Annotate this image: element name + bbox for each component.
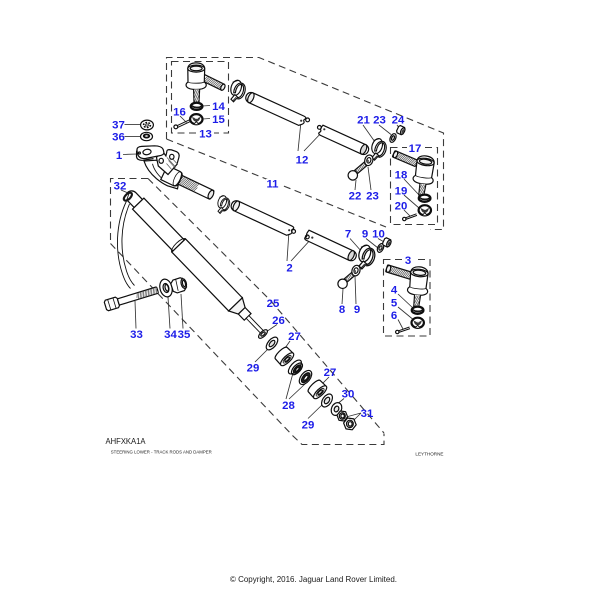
svg-text:9: 9 bbox=[354, 304, 360, 316]
svg-text:5: 5 bbox=[391, 298, 398, 310]
svg-text:22: 22 bbox=[349, 191, 362, 203]
svg-text:10: 10 bbox=[372, 229, 385, 241]
svg-text:24: 24 bbox=[392, 115, 405, 127]
svg-text:20: 20 bbox=[395, 201, 408, 213]
svg-text:27: 27 bbox=[288, 331, 301, 343]
svg-text:30: 30 bbox=[342, 389, 355, 401]
svg-text:37: 37 bbox=[112, 120, 125, 132]
svg-text:34: 34 bbox=[164, 329, 177, 341]
svg-text:12: 12 bbox=[296, 155, 309, 167]
svg-text:3: 3 bbox=[405, 255, 411, 267]
svg-text:33: 33 bbox=[130, 329, 143, 341]
svg-text:11: 11 bbox=[266, 179, 279, 191]
svg-text:9: 9 bbox=[362, 229, 368, 241]
svg-text:14: 14 bbox=[212, 101, 225, 113]
svg-text:2: 2 bbox=[286, 263, 292, 275]
svg-text:8: 8 bbox=[339, 304, 345, 316]
svg-text:6: 6 bbox=[391, 310, 397, 322]
svg-text:18: 18 bbox=[395, 170, 408, 182]
svg-text:17: 17 bbox=[409, 143, 422, 155]
svg-text:13: 13 bbox=[199, 129, 212, 141]
svg-text:1: 1 bbox=[116, 150, 123, 162]
svg-text:AHFXKA1A: AHFXKA1A bbox=[106, 436, 146, 446]
svg-text:19: 19 bbox=[395, 186, 408, 198]
svg-text:21: 21 bbox=[357, 115, 370, 127]
svg-text:4: 4 bbox=[391, 285, 398, 297]
svg-text:© Copyright, 2016. Jaguar Land: © Copyright, 2016. Jaguar Land Rover Lim… bbox=[230, 575, 397, 584]
svg-text:16: 16 bbox=[173, 107, 186, 119]
svg-text:36: 36 bbox=[112, 132, 125, 144]
svg-text:25: 25 bbox=[267, 298, 280, 310]
svg-text:27: 27 bbox=[324, 367, 337, 379]
svg-text:32: 32 bbox=[114, 181, 127, 193]
svg-text:28: 28 bbox=[282, 400, 295, 412]
svg-text:35: 35 bbox=[178, 329, 191, 341]
svg-text:29: 29 bbox=[302, 420, 315, 432]
svg-text:31: 31 bbox=[361, 408, 374, 420]
svg-text:7: 7 bbox=[345, 229, 351, 241]
svg-text:26: 26 bbox=[272, 315, 285, 327]
svg-text:23: 23 bbox=[373, 115, 386, 127]
svg-text:15: 15 bbox=[212, 114, 225, 126]
svg-text:STEERING LOWER - TRACK RODS AN: STEERING LOWER - TRACK RODS AND DAMPER bbox=[111, 450, 213, 455]
svg-text:29: 29 bbox=[247, 363, 260, 375]
svg-text:LEYTHORNE: LEYTHORNE bbox=[415, 452, 443, 457]
svg-text:23: 23 bbox=[366, 191, 379, 203]
